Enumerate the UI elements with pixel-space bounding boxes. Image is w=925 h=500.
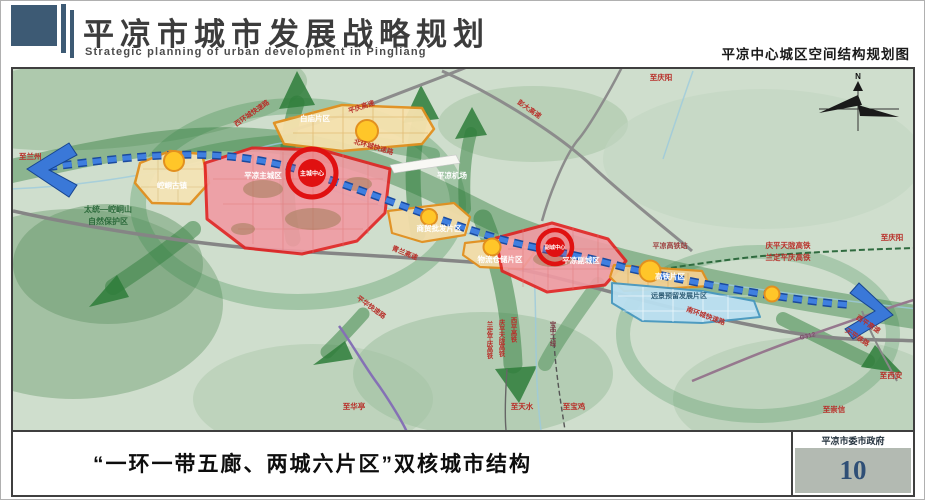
page-number: 10 [795, 448, 911, 493]
header-bar-1 [61, 4, 66, 53]
main-city-label: 平凉主城区 [244, 170, 282, 180]
v-ldpq-hsr-label: 兰定平庆高铁 [486, 320, 494, 360]
airport-label: 平凉机场 [437, 170, 467, 180]
footer-bar: “一环一带五廊、两城六片区”双核城市结构 平凉市委市政府 10 [11, 432, 915, 497]
planning-map: 主城中心 副城中心 N 至兰州 太统—崆峒山 自然保护区 崆峒古镇 西环城快速路… [13, 69, 913, 430]
header-bar-2 [70, 10, 74, 58]
compass-north-label: N [855, 72, 861, 81]
v-baozhong-rail-label: 宝中二线 [549, 320, 556, 348]
dest-lanzhou: 至兰州 [19, 151, 42, 161]
dest-xian: 至西安 [880, 370, 903, 380]
map-subtitle: 平凉中心城区空间结构规划图 [722, 43, 911, 63]
kongtong-district-label: 崆峒古镇 [157, 180, 187, 190]
v-qptl-hsr-label: 庆平天陇高铁 [498, 318, 506, 358]
slide-page: 平凉市城市发展战略规划 Strategic planning of urban … [0, 0, 925, 500]
hsr-district-label: 高铁片区 [655, 271, 685, 281]
page-number-box: 平凉市委市政府 10 [791, 432, 913, 495]
baimiao-district-label: 白庙片区 [300, 113, 330, 123]
dest-qingyang-north: 至庆阳 [650, 72, 673, 82]
nature-reserve-line2: 自然保护区 [88, 216, 128, 226]
dest-huating: 至华亭 [343, 401, 366, 411]
v-xiping-hsr-label: 西平高铁 [510, 317, 518, 344]
sub-city-label: 平凉副城区 [562, 255, 600, 265]
main-core-label: 主城中心 [300, 170, 324, 178]
logo-square [11, 5, 57, 46]
main-core-marker: 主城中心 [288, 149, 336, 197]
ldpq-hsr-label: 兰定平庆高铁 [766, 252, 811, 262]
sub-core-label: 副城中心 [545, 243, 567, 251]
qptl-hsr-label: 庆平天陇高铁 [765, 240, 811, 250]
structure-caption: “一环一带五廊、两城六片区”双核城市结构 [93, 448, 532, 478]
page-subtitle-en: Strategic planning of urban development … [85, 46, 427, 58]
organization-label: 平凉市委市政府 [793, 432, 913, 447]
dest-tianshui: 至天水 [511, 401, 534, 411]
hsr-station-label: 平凉高铁站 [653, 241, 688, 250]
reserved-district-label: 远景预留发展片区 [651, 291, 707, 300]
dest-qingyang-east: 至庆阳 [881, 232, 904, 242]
wholesale-district-label: 商贸批发片区 [417, 223, 462, 233]
dest-baoji: 至宝鸡 [563, 401, 586, 411]
logistics-district-label: 物流仓储片区 [478, 254, 523, 264]
nature-reserve-line1: 太统—崆峒山 [83, 204, 132, 214]
map-frame: 主城中心 副城中心 N 至兰州 太统—崆峒山 自然保护区 崆峒古镇 西环城快速路… [11, 67, 915, 432]
dest-chongxin: 至崇信 [823, 404, 846, 414]
